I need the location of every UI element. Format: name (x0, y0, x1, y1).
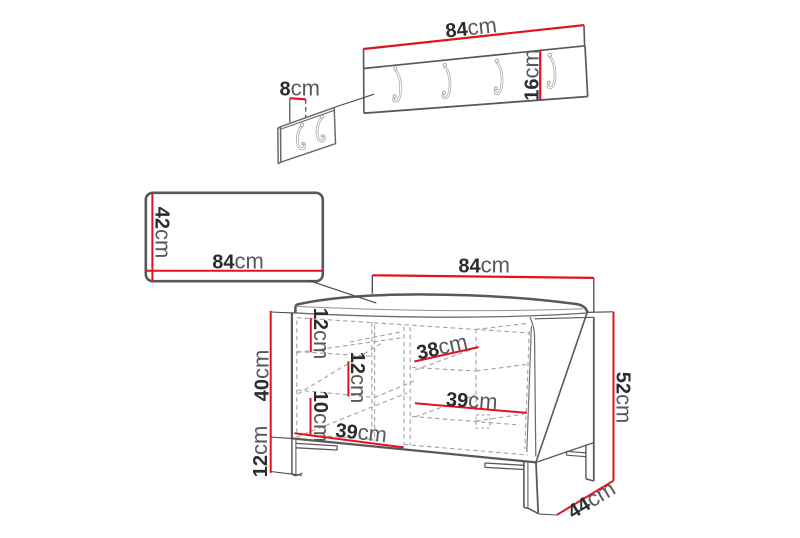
svg-text:10cm: 10cm (309, 391, 334, 443)
svg-text:40cm: 40cm (248, 350, 273, 402)
svg-text:52cm: 52cm (612, 372, 637, 424)
svg-text:16cm: 16cm (518, 49, 543, 101)
svg-text:84cm: 84cm (458, 253, 510, 278)
svg-text:12cm: 12cm (247, 426, 272, 478)
svg-text:8cm: 8cm (280, 76, 320, 101)
svg-text:12cm: 12cm (346, 352, 371, 404)
svg-text:84cm: 84cm (212, 248, 264, 273)
svg-text:42cm: 42cm (150, 207, 175, 259)
svg-text:12cm: 12cm (309, 308, 334, 360)
svg-text:39cm: 39cm (445, 386, 498, 415)
